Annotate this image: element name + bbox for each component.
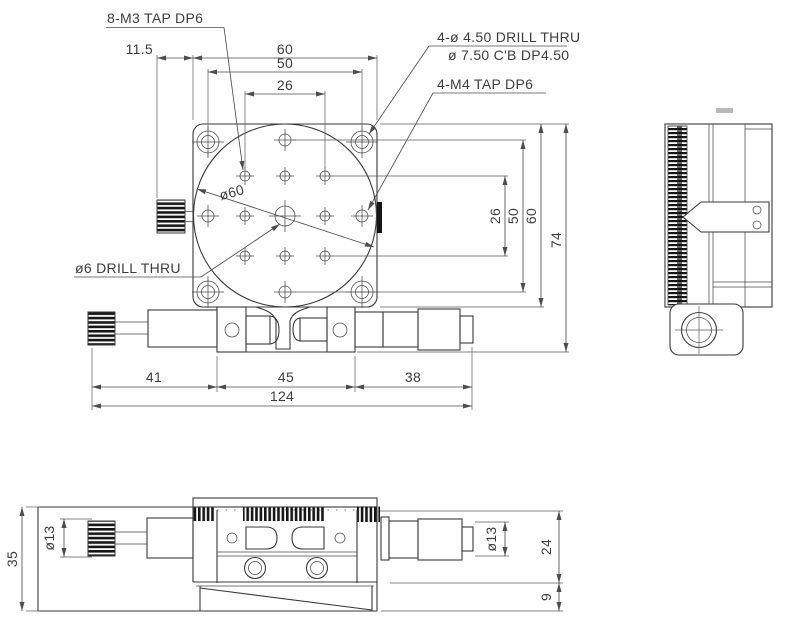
x-micrometer-left — [88, 310, 279, 347]
flexure-tongue — [256, 307, 310, 349]
x-micrometer-right — [293, 309, 473, 350]
faint-mark — [716, 108, 733, 113]
note-center-drill: ø6 DRILL THRU — [75, 260, 181, 276]
saddle — [217, 307, 355, 352]
dim-124: 124 — [270, 388, 294, 404]
dim-d13-right: ø13 — [483, 526, 499, 551]
micrometer-cap — [462, 527, 473, 551]
dim-11-5: 11.5 — [126, 41, 153, 57]
knurl-teeth-middle — [243, 508, 325, 522]
rotation-lock-knob — [157, 200, 193, 233]
clamp-bar — [377, 202, 382, 233]
socket-screw — [307, 558, 328, 579]
center-hole — [269, 200, 301, 232]
micrometer-thimble — [418, 309, 460, 350]
dim-24: 24 — [538, 539, 554, 555]
right-bracket — [327, 307, 355, 352]
dim-60-v: 60 — [523, 208, 539, 224]
dim-26-v: 26 — [487, 208, 503, 224]
base-wedge — [193, 582, 377, 611]
spindle-tip — [270, 316, 279, 344]
x-micrometer-front-right — [381, 517, 473, 560]
dim-9: 9 — [538, 593, 554, 601]
micrometer-sleeve — [383, 312, 418, 347]
dim-41: 41 — [146, 369, 162, 385]
left-bracket — [217, 307, 246, 352]
note-m3-tap: 8-M3 TAP DP6 — [107, 10, 203, 26]
dim-50-v: 50 — [505, 208, 521, 224]
socket-screw — [245, 558, 266, 579]
knurl-teeth-left — [193, 508, 215, 522]
micrometer-thimble — [418, 519, 462, 560]
note-drill-cb-line2: ø 7.50 C'B DP4.50 — [448, 47, 569, 63]
side-view — [665, 108, 772, 355]
micrometer-flange — [381, 517, 389, 560]
note-drill-cb-line1: 4-ø 4.50 DRILL THRU — [437, 29, 580, 45]
dim-74-v: 74 — [548, 232, 564, 248]
knurled-knob — [88, 521, 115, 556]
dim-26-h: 26 — [277, 77, 293, 93]
y-micrometer-end-view — [670, 304, 743, 355]
spindle-front-right — [292, 527, 324, 549]
dim-45: 45 — [278, 369, 294, 385]
knurled-knob — [88, 312, 115, 345]
x-micrometer-front-left — [88, 518, 193, 558]
dim-38: 38 — [405, 369, 421, 385]
spindle-front-left — [246, 527, 277, 549]
clamp-lever-tag — [683, 202, 769, 232]
dims-bottom: 41 45 38 124 — [92, 347, 472, 410]
top-plate-edge — [193, 498, 377, 507]
stage-drawing: 8-M3 TAP DP6 4-ø 4.50 DRILL THRU ø 7.50 … — [0, 0, 787, 631]
dims-top: 11.5 60 50 26 — [126, 41, 377, 198]
dim-50-h: 50 — [277, 55, 293, 71]
top-view — [88, 124, 473, 352]
front-view — [38, 498, 473, 611]
dims-right: 26 50 60 74 — [293, 124, 569, 352]
spindle-tip — [293, 318, 300, 341]
dim-d13-left: ø13 — [41, 525, 57, 550]
note-platform-dia: ø60 — [218, 181, 246, 203]
technical-drawing-sheet: 8-M3 TAP DP6 4-ø 4.50 DRILL THRU ø 7.50 … — [0, 0, 787, 631]
micrometer-cap — [460, 316, 473, 343]
dim-35: 35 — [4, 551, 20, 567]
note-m4-tap: 4-M4 TAP DP6 — [437, 76, 533, 92]
